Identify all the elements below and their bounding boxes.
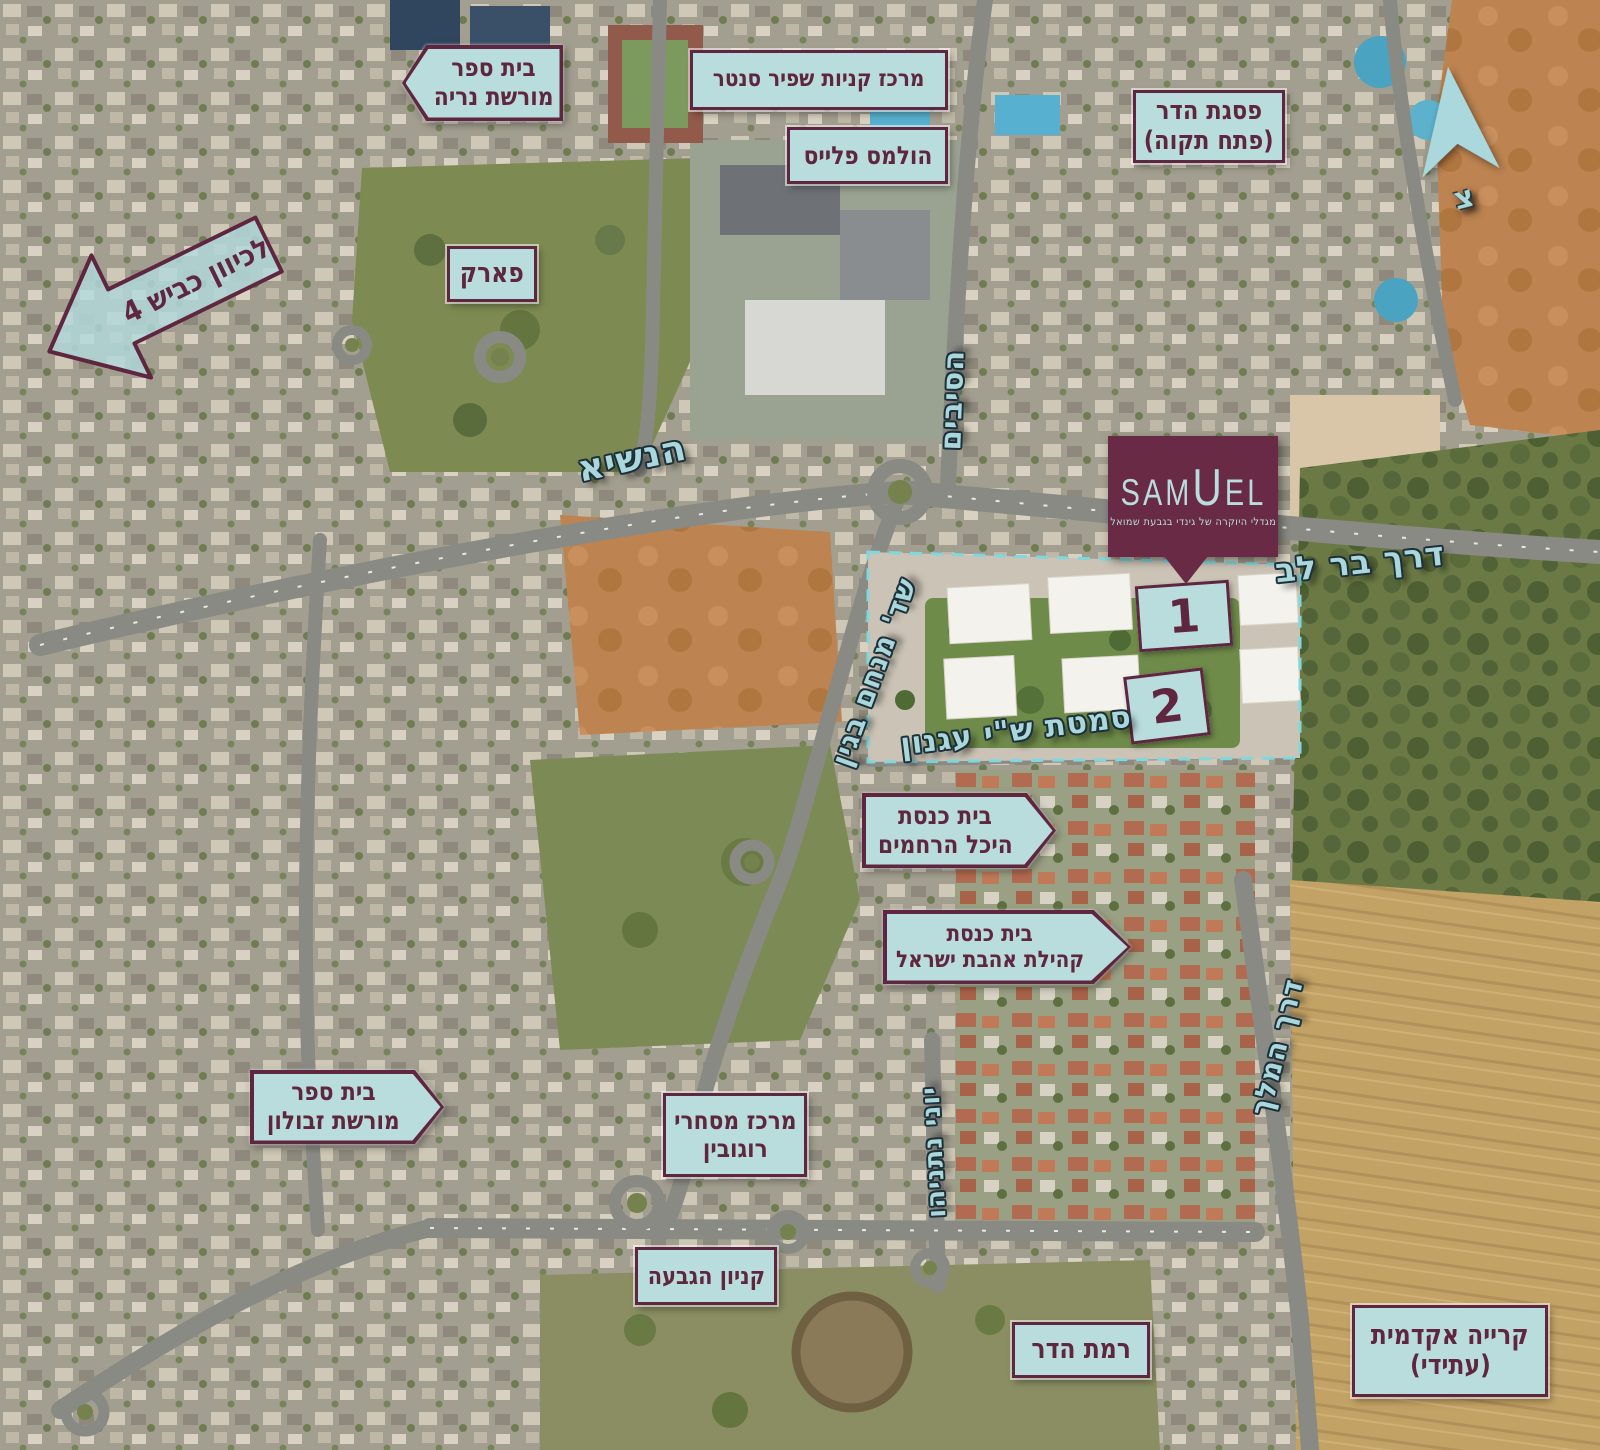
label-ramat-hadar: רמת הדר (1012, 1322, 1150, 1378)
label-morshet-zevulun-line2: מורשת זבולון (267, 1107, 400, 1136)
logo-pointer-tail (1164, 556, 1208, 584)
label-kirya-akademit-line2: (עתידי) (1410, 1351, 1491, 1381)
label-morshet-zevulun-line1: בית ספר (291, 1078, 375, 1107)
street-label-hasivim: הסיבים (933, 349, 970, 451)
label-ahavat-israel-line1: בית כנסת (946, 921, 1032, 947)
logo-part-u: U (1192, 465, 1224, 512)
building-2-number: 2 (1148, 677, 1186, 734)
logo-part-el: EL (1224, 476, 1266, 509)
label-kanyon-hagiva-text: קניון הגבעה (647, 1263, 764, 1290)
label-shapir-center: מרכז קניות שפיר סנטר (690, 50, 948, 110)
project-logo: SAMUEL מגדלי היוקרה של גינדי בגבעת שמואל (1108, 436, 1278, 557)
north-arrow-icon (1406, 59, 1503, 183)
label-morshet-neria: בית ספר מורשת נריה (402, 45, 563, 121)
label-psagat-hadar-line1: פסגת הדר (1156, 97, 1262, 126)
label-ramat-hadar-text: רמת הדר (1031, 1335, 1130, 1365)
label-holmes-place-text: הולמס פלייס (803, 142, 932, 170)
label-park: פארק (447, 246, 537, 302)
label-psagat-hadar: פסגת הדר (פתח תקוה) (1133, 90, 1285, 163)
building-1-marker: 1 (1135, 580, 1233, 652)
label-kirya-akademit: קרייה אקדמית (עתידי) (1352, 1305, 1548, 1397)
label-rogovin-line1: מרכז מסחרי (674, 1107, 796, 1135)
label-heichal-harachamim-line2: היכל הרחמים (878, 831, 1013, 860)
building-1-number: 1 (1166, 588, 1202, 644)
logo-part-sam: SAM (1120, 476, 1192, 509)
building-2-marker: 2 (1123, 667, 1211, 744)
label-morshet-neria-line1: בית ספר (452, 54, 536, 83)
project-logo-tagline: מגדלי היוקרה של גינדי בגבעת שמואל (1110, 516, 1276, 528)
label-kanyon-hagiva: קניון הגבעה (635, 1247, 777, 1305)
label-shapir-center-text: מרכז קניות שפיר סנטר (713, 67, 925, 93)
label-kirya-akademit-line1: קרייה אקדמית (1371, 1321, 1529, 1351)
label-psagat-hadar-line2: (פתח תקוה) (1144, 127, 1274, 156)
label-ahavat-israel: בית כנסת קהילת אהבת ישראל (883, 910, 1131, 984)
label-rogovin-line2: רוגובין (703, 1135, 768, 1163)
site-area-map: לכיוון כביש 4 צ SAMUEL מגדלי היוקרה של ג… (0, 0, 1600, 1450)
label-heichal-harachamim-line1: בית כנסת (898, 802, 992, 831)
label-park-text: פארק (460, 259, 524, 289)
label-morshet-neria-line2: מורשת נריה (434, 83, 554, 112)
project-logo-wordmark: SAMUEL (1120, 465, 1266, 512)
label-rogovin-center: מרכז מסחרי רוגובין (663, 1093, 807, 1177)
label-heichal-harachamim: בית כנסת היכל הרחמים (862, 793, 1056, 868)
label-morshet-zevulun: בית ספר מורשת זבולון (250, 1070, 444, 1144)
north-letter: צ (1450, 179, 1478, 218)
label-holmes-place: הולמס פלייס (787, 127, 948, 184)
label-ahavat-israel-line2: קהילת אהבת ישראל (896, 947, 1084, 973)
